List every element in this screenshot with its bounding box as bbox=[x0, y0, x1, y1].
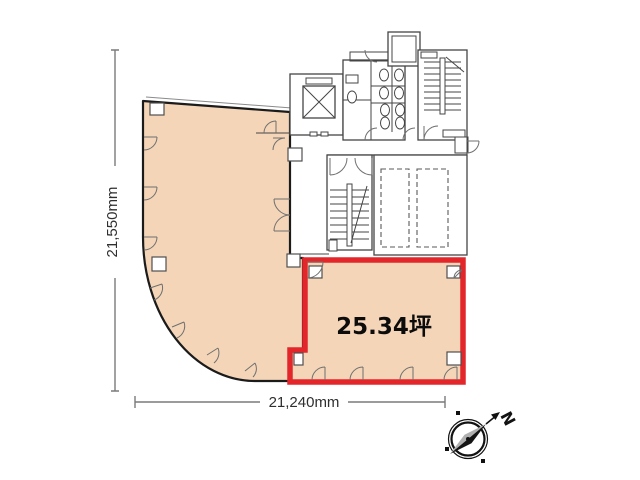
compass: N bbox=[445, 408, 519, 463]
compass-center-dot bbox=[466, 437, 470, 441]
door-arc bbox=[467, 141, 479, 153]
toilet-icon bbox=[381, 117, 390, 129]
toilet-icon bbox=[395, 69, 404, 81]
toilet-icon bbox=[396, 104, 405, 116]
stair-top-landing bbox=[421, 52, 437, 58]
stair-base-step bbox=[329, 240, 337, 251]
column bbox=[447, 352, 461, 365]
column bbox=[288, 148, 302, 161]
core-top bbox=[290, 32, 468, 155]
height-dimension-label: 21,550mm bbox=[104, 187, 121, 258]
core-middle bbox=[290, 155, 467, 255]
column bbox=[152, 257, 166, 271]
column bbox=[294, 353, 303, 365]
column bbox=[150, 103, 164, 115]
stair-rail bbox=[347, 184, 352, 246]
toilet-icon bbox=[396, 117, 405, 129]
compass-dot bbox=[445, 447, 449, 451]
compass-dot bbox=[456, 411, 460, 415]
exterior-step bbox=[455, 137, 468, 153]
width-dimension-label: 21,240mm bbox=[269, 394, 340, 411]
machine-room bbox=[374, 155, 467, 255]
toilet-icon bbox=[381, 104, 390, 116]
sink-fixture bbox=[346, 75, 358, 83]
north-label: N bbox=[496, 408, 519, 429]
area-label: 25.34坪 bbox=[336, 314, 432, 340]
toilet-icon bbox=[348, 91, 357, 103]
shaft-protrusion bbox=[388, 32, 420, 66]
floor-plan: 25.34坪 21,550mm 21,240mm N bbox=[0, 0, 640, 480]
toilet-icon bbox=[395, 87, 404, 99]
main-room bbox=[143, 101, 303, 381]
elevator-door-tick bbox=[310, 132, 317, 136]
compass-dot bbox=[481, 459, 485, 463]
exterior-step bbox=[443, 130, 465, 137]
toilet-icon bbox=[380, 87, 389, 99]
elevator-counterweight bbox=[306, 78, 332, 84]
toilet-icon bbox=[380, 69, 389, 81]
stair-rail bbox=[440, 58, 445, 114]
floor-plan-svg: 25.34坪 21,550mm 21,240mm N bbox=[0, 0, 640, 480]
column bbox=[447, 266, 460, 278]
elevator-door-tick bbox=[321, 132, 328, 136]
height-dimension: 21,550mm bbox=[102, 50, 121, 391]
width-dimension: 21,240mm bbox=[135, 392, 445, 411]
column bbox=[287, 254, 300, 267]
